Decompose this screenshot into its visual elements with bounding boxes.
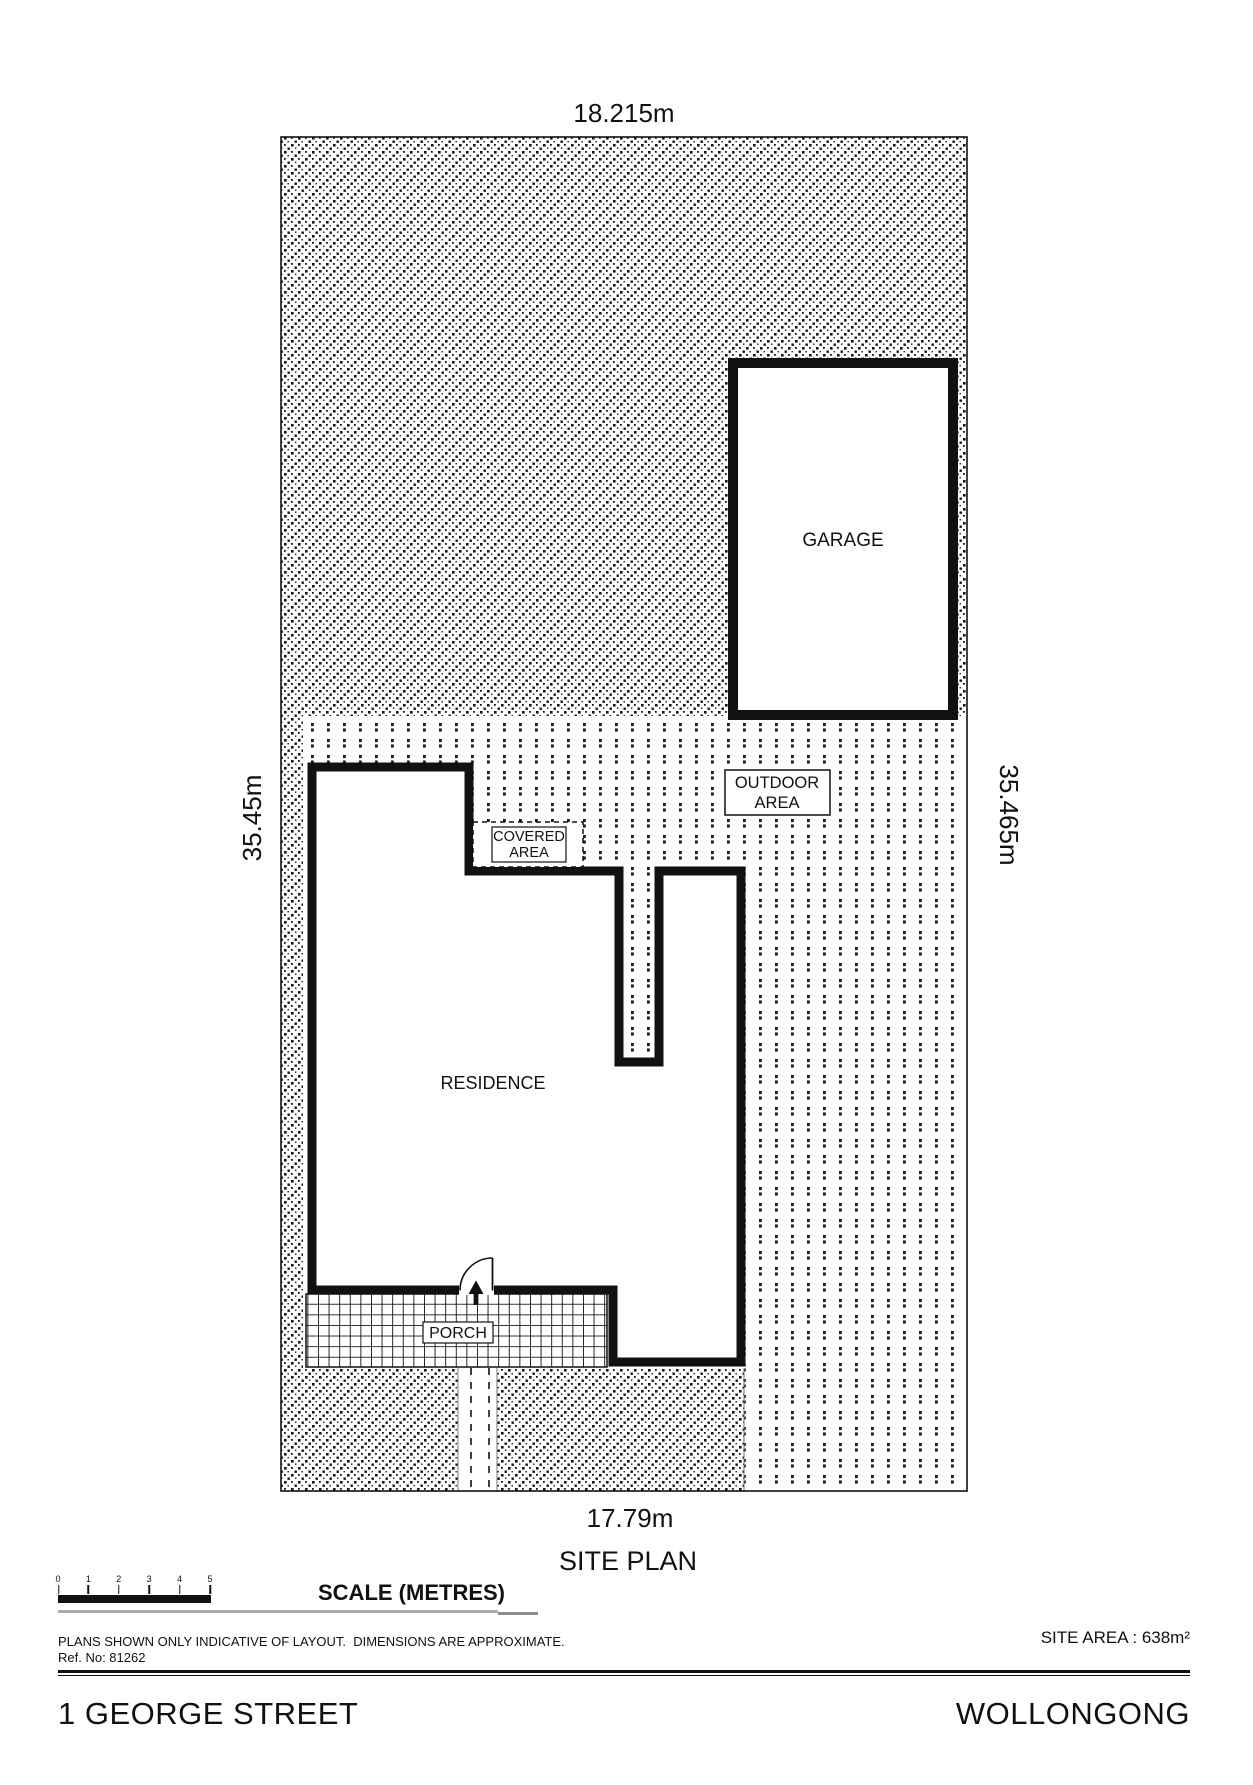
dimension-left: 35.45m [237, 775, 267, 862]
site-plan-document: GARAGE RESIDENCE OUTDOOR AREA COVERED AR… [0, 0, 1253, 1785]
scale-tick-5: 5 [207, 1574, 212, 1584]
site-plan-drawing: GARAGE RESIDENCE OUTDOOR AREA COVERED AR… [0, 0, 1253, 1785]
site-area-value: SITE AREA : 638m² [890, 1628, 1190, 1648]
residence-label: RESIDENCE [440, 1073, 545, 1093]
scale-tick-2: 2 [116, 1574, 121, 1584]
scale-tick-3: 3 [147, 1574, 152, 1584]
grey-divider [58, 1610, 498, 1613]
outdoor-area-label: OUTDOOR AREA [725, 770, 830, 815]
covered-area-label-line1: COVERED [493, 829, 565, 845]
dimension-right: 35.465m [994, 764, 1024, 865]
plan-title: SITE PLAN [559, 1546, 697, 1576]
porch-label-text: PORCH [429, 1325, 487, 1342]
scale-bar: 0 1 2 3 4 5 [58, 1574, 218, 1604]
reference-number: Ref. No: 81262 [58, 1650, 358, 1665]
scale-tick-4: 4 [177, 1574, 182, 1584]
outdoor-area-label-line2: AREA [755, 794, 800, 812]
front-path [458, 1368, 497, 1491]
dimension-top: 18.215m [573, 98, 674, 128]
scale-bar-rect [58, 1595, 211, 1603]
disclaimer-note: PLANS SHOWN ONLY INDICATIVE OF LAYOUT. D… [58, 1634, 578, 1649]
suburb-name: WOLLONGONG [890, 1696, 1190, 1732]
scale-caption: SCALE (METRES) [318, 1580, 558, 1606]
street-address: 1 GEORGE STREET [58, 1696, 358, 1732]
grey-divider-end [498, 1612, 538, 1615]
covered-area-label-line2: AREA [509, 845, 549, 861]
scale-tick-0: 0 [55, 1574, 60, 1584]
footer-rule [58, 1670, 1190, 1676]
garage-label: GARAGE [802, 530, 883, 551]
scale-tick-1: 1 [86, 1574, 91, 1584]
covered-area-label: COVERED AREA [492, 827, 566, 862]
outdoor-area-label-line1: OUTDOOR [735, 774, 819, 792]
dimension-bottom: 17.79m [587, 1503, 674, 1533]
porch-label: PORCH [423, 1322, 493, 1343]
